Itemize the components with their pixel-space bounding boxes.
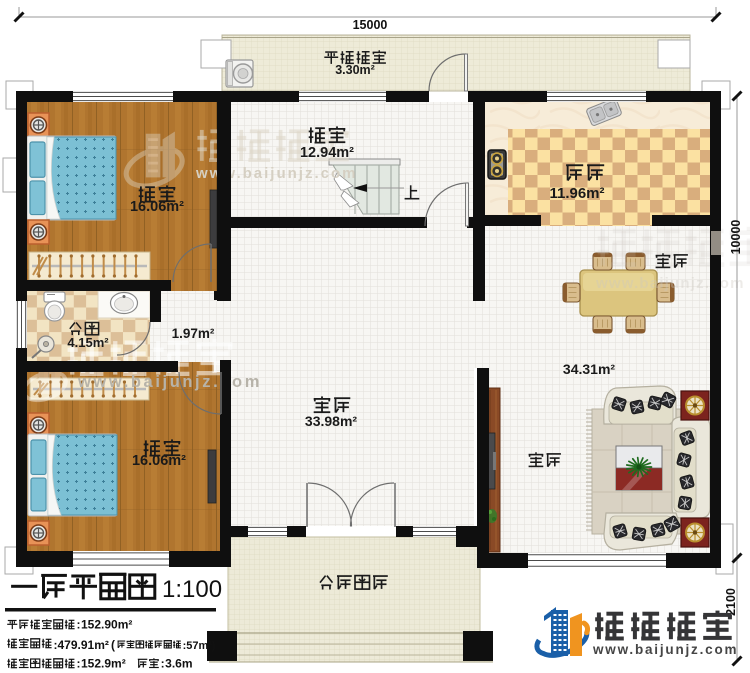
svg-text:www.baijunjz.com: www.baijunjz.com	[595, 275, 745, 292]
svg-text::57m²): :57m²)	[183, 640, 216, 652]
svg-text:16.06m²: 16.06m²	[132, 453, 186, 469]
svg-text:33.98m²: 33.98m²	[305, 413, 357, 429]
svg-text::: :	[77, 618, 81, 632]
svg-text:152.90m²: 152.90m²	[81, 618, 132, 632]
svg-text:1:100: 1:100	[162, 576, 222, 603]
svg-text:3.30m²: 3.30m²	[335, 63, 375, 77]
svg-text:16.06m²: 16.06m²	[130, 199, 184, 215]
svg-text:www.baijunjz.com: www.baijunjz.com	[77, 373, 262, 391]
svg-text:10000: 10000	[729, 220, 743, 255]
svg-text:1.97m²: 1.97m²	[172, 326, 215, 341]
svg-text:(: (	[111, 638, 115, 652]
svg-text:15000: 15000	[353, 18, 388, 32]
svg-text:4.15m²: 4.15m²	[67, 335, 109, 350]
svg-text:34.31m²: 34.31m²	[563, 361, 615, 377]
svg-text:152.9m²: 152.9m²	[81, 657, 126, 671]
svg-text:3.6m: 3.6m	[165, 657, 192, 671]
svg-text::: :	[77, 657, 81, 671]
svg-text:11.96m²: 11.96m²	[549, 185, 604, 202]
svg-text:www.baijunjz.com: www.baijunjz.com	[592, 642, 738, 657]
svg-text::479.91m²: :479.91m²	[54, 638, 109, 652]
svg-text:12.94m²: 12.94m²	[300, 145, 354, 161]
svg-text::: :	[161, 657, 165, 671]
svg-text:2100: 2100	[724, 588, 738, 616]
